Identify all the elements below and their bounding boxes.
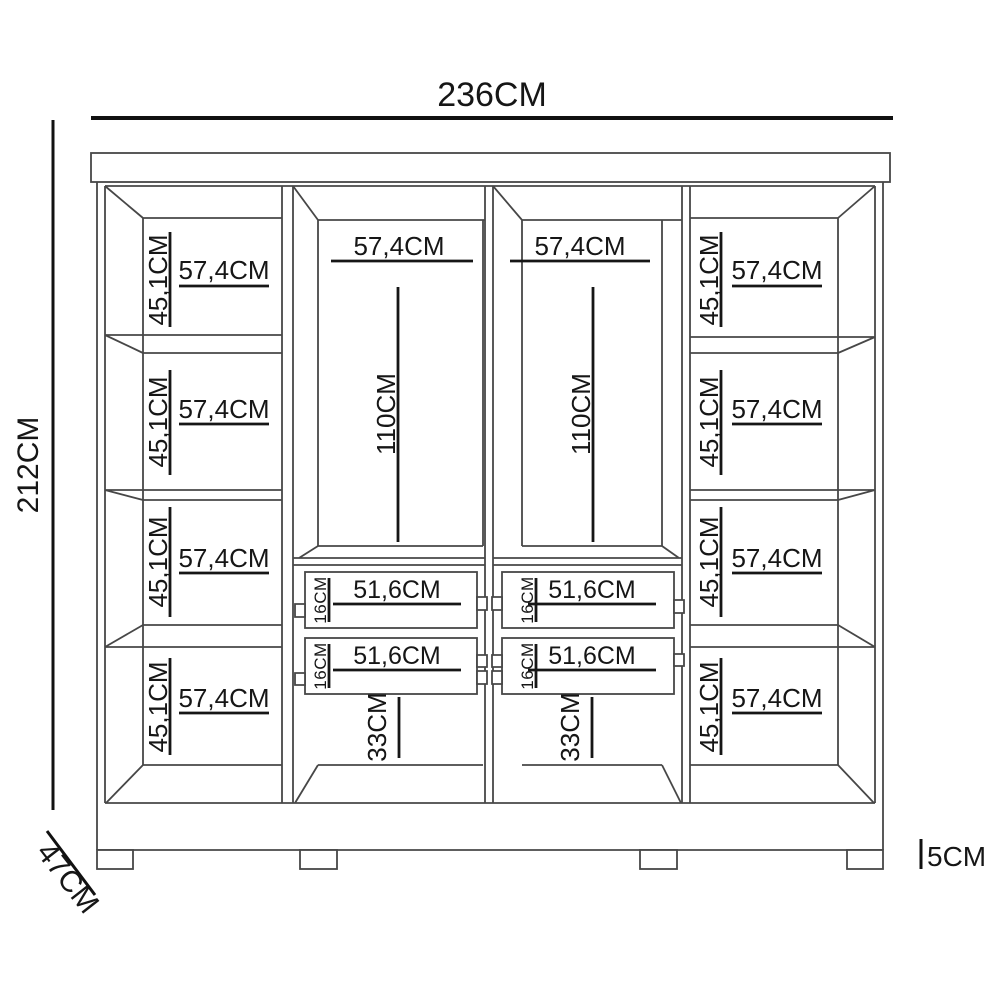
left-column-labels: 57,4CM 45,1CM 57,4CM 45,1CM 57,4CM 45,1C… xyxy=(143,232,270,755)
center-right-hanging-height-label: 110CM xyxy=(566,373,596,455)
diagram-canvas: 236CM 212CM 47CM 5CM xyxy=(0,0,1000,1000)
foot-2 xyxy=(300,850,337,869)
total-height-label: 212CM xyxy=(12,417,45,514)
left-compartment-3-width-label: 57,4CM xyxy=(178,543,269,573)
center-right-drawer-2-height-label: 16CM xyxy=(518,642,537,689)
left-column-shelf-3 xyxy=(105,625,282,647)
top-crown-panel xyxy=(91,153,890,182)
center-right-drawer-1-height-label: 16CM xyxy=(518,576,537,623)
center-left-drawer-2-height-label: 16CM xyxy=(311,642,330,689)
center-right-floor xyxy=(522,765,681,803)
left-compartment-3-height-label: 45,1CM xyxy=(143,516,173,607)
center-left-floor xyxy=(295,765,483,803)
right-compartment-1-height-label: 45,1CM xyxy=(694,234,724,325)
base-height-label: 5CM xyxy=(927,841,986,872)
center-left-width-label: 57,4CM xyxy=(353,231,444,261)
right-compartment-4-width-label: 57,4CM xyxy=(731,683,822,713)
center-right-shelf-above-drawers xyxy=(493,546,682,565)
foot-3 xyxy=(640,850,677,869)
center-left-drawer-1-width-label: 51,6CM xyxy=(353,576,441,604)
foot-1 xyxy=(97,850,133,869)
left-column-floor xyxy=(106,765,282,803)
left-compartment-2-width-label: 57,4CM xyxy=(178,394,269,424)
divider-wall-3 xyxy=(682,186,690,803)
center-left-shelf-above-drawers xyxy=(293,546,485,565)
right-compartment-2-height-label: 45,1CM xyxy=(694,376,724,467)
right-column-shelf-1 xyxy=(690,337,875,353)
center-right-width-label: 57,4CM xyxy=(534,231,625,261)
left-compartment-4-height-label: 45,1CM xyxy=(143,661,173,752)
left-compartment-1-height-label: 45,1CM xyxy=(143,234,173,325)
center-left-drawer-1-height-label: 16CM xyxy=(311,576,330,623)
right-compartment-4-height-label: 45,1CM xyxy=(694,661,724,752)
center-right-drawer-2-width-label: 51,6CM xyxy=(548,642,636,670)
center-right-drawer-1-width-label: 51,6CM xyxy=(548,576,636,604)
left-column-shelf-2 xyxy=(105,490,282,500)
left-compartment-2-height-label: 45,1CM xyxy=(143,376,173,467)
divider-wall-2 xyxy=(485,186,493,803)
overall-dimensions: 236CM 212CM 47CM 5CM xyxy=(12,76,986,920)
wardrobe-dimension-diagram: 236CM 212CM 47CM 5CM xyxy=(0,0,1000,1000)
total-width-label: 236CM xyxy=(437,76,547,114)
left-side-wall xyxy=(97,182,105,850)
center-right-bottom-height-label: 33CM xyxy=(555,692,585,761)
center-left-hanging-height-label: 110CM xyxy=(371,373,401,455)
foot-4 xyxy=(847,850,883,869)
right-column-labels: 57,4CM 45,1CM 57,4CM 45,1CM 57,4CM 45,1C… xyxy=(694,232,823,755)
right-column-shelf-3 xyxy=(690,625,875,647)
right-compartment-3-width-label: 57,4CM xyxy=(731,543,822,573)
left-compartment-4-width-label: 57,4CM xyxy=(178,683,269,713)
right-side-wall xyxy=(875,182,883,850)
depth-label: 47CM xyxy=(30,836,105,919)
right-compartment-1-width-label: 57,4CM xyxy=(731,255,822,285)
center-left-drawer-2-width-label: 51,6CM xyxy=(353,642,441,670)
center-left-bottom-height-label: 33CM xyxy=(362,692,392,761)
right-column-floor xyxy=(690,765,874,803)
left-compartment-1-width-label: 57,4CM xyxy=(178,255,269,285)
divider-wall-1 xyxy=(282,186,293,803)
left-column-shelf-1 xyxy=(105,335,282,353)
right-compartment-2-width-label: 57,4CM xyxy=(731,394,822,424)
right-compartment-3-height-label: 45,1CM xyxy=(694,516,724,607)
right-column-shelf-2 xyxy=(690,490,875,500)
